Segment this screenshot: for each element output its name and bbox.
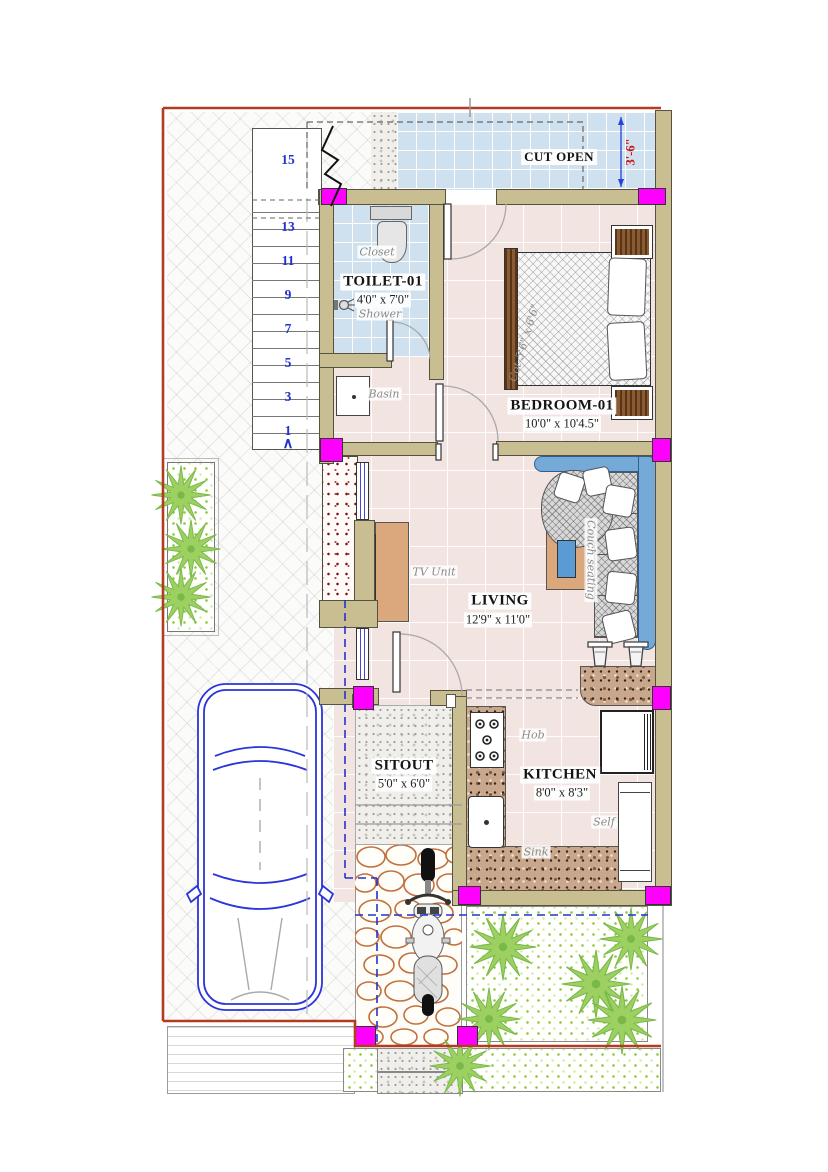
scooter-icon [402,846,454,1018]
fixture-label-sink: Sink [522,846,551,859]
floor-plan: 15 13 11 9 7 5 3 1 ∧ [0,0,828,1172]
dimension-label: 3'-6" [624,138,639,165]
column [458,886,481,905]
fixture-label-couch: Couch seating [585,518,598,602]
room-dims-sitout: 5'0" x 6'0" [376,777,432,792]
room-dims-living: 12'9" x 11'0" [464,613,532,628]
fixture-label-shower: Shower [357,308,403,321]
wall-bottom [452,890,672,906]
counter-jar-icon [622,640,650,668]
fixture-label-basin: Basin [367,388,402,401]
fridge-line [620,870,650,871]
car-icon [185,678,335,1016]
wc-tank [370,206,412,220]
column [355,1026,376,1047]
bedside-table [612,387,652,419]
room-label-kitchen: KITCHEN [520,767,600,784]
fixture-label-shelf: Self [591,816,617,829]
column [638,188,666,205]
cut-open-label: CUT OPEN [521,149,597,165]
coffee-table-top [557,540,576,578]
palm-tree-icon [598,906,664,972]
column [457,1026,478,1047]
tv-unit [375,522,409,622]
stair-number: 11 [270,253,306,269]
room-dims-bedroom: 10'0" x 10'4.5" [523,417,601,432]
driveway-ramp [167,1026,355,1094]
couch-back-right [638,456,656,650]
room-label-bedroom: BEDROOM-01 [507,398,616,415]
wall-right [655,110,672,906]
fixture-label-hob: Hob [519,729,546,742]
wall [496,189,657,205]
couch-pillow [602,484,637,519]
wall-bedroom-living [496,441,657,456]
column [321,188,347,205]
stair-number: 5 [270,355,306,371]
column [645,886,671,905]
bed-pillow [607,257,647,316]
counter-jar-icon [586,640,614,668]
door-threshold [446,694,456,708]
wall-toilet [429,204,444,380]
stair-number: 13 [270,219,306,235]
sink-drain [484,820,489,825]
palm-tree-icon [468,912,538,982]
fixture-label-closet: Closet [357,246,396,259]
couch-pillow [604,526,638,562]
stair-number: 9 [270,287,306,303]
stair-up-arrow-icon: ∧ [270,434,306,453]
fridge [618,782,652,882]
basin-drain [352,395,356,399]
window [356,628,369,680]
room-dims-toilet: 4'0" x 7'0" [355,293,411,308]
palm-tree-icon [150,464,212,526]
wall-left [319,189,334,464]
shower-icon [334,296,356,316]
wall-tv-nook [354,520,375,602]
column [652,438,671,462]
shelf-lines [644,714,651,770]
stair-number: 15 [270,152,306,168]
room-label-sitout: SITOUT [372,758,437,775]
stair-number: 7 [270,321,306,337]
wall-toilet [319,353,392,368]
stair-number: 3 [270,389,306,405]
room-label-living: LIVING [468,593,531,610]
wall-kitchen [452,696,467,904]
palm-tree-icon [150,566,212,628]
room-dims-kitchen: 8'0" x 8'3" [534,786,590,801]
sitout-floor [355,705,462,845]
porch-strip [371,112,397,190]
bedside-table [612,226,652,258]
room-label-toilet: TOILET-01 [340,274,425,291]
wall-tv-nook [319,600,378,628]
column [320,438,343,462]
hob-burners-icon [470,712,504,768]
fixture-label-tv-unit: TV Unit [410,566,457,579]
kitchen-counter-top [580,666,656,706]
column [652,686,671,710]
window [356,462,369,520]
flower-bed [322,456,358,602]
column [353,686,374,710]
bed-pillow [607,321,648,381]
fridge-line [620,792,650,793]
palm-tree-icon [586,984,658,1056]
couch-pillow [604,571,637,606]
